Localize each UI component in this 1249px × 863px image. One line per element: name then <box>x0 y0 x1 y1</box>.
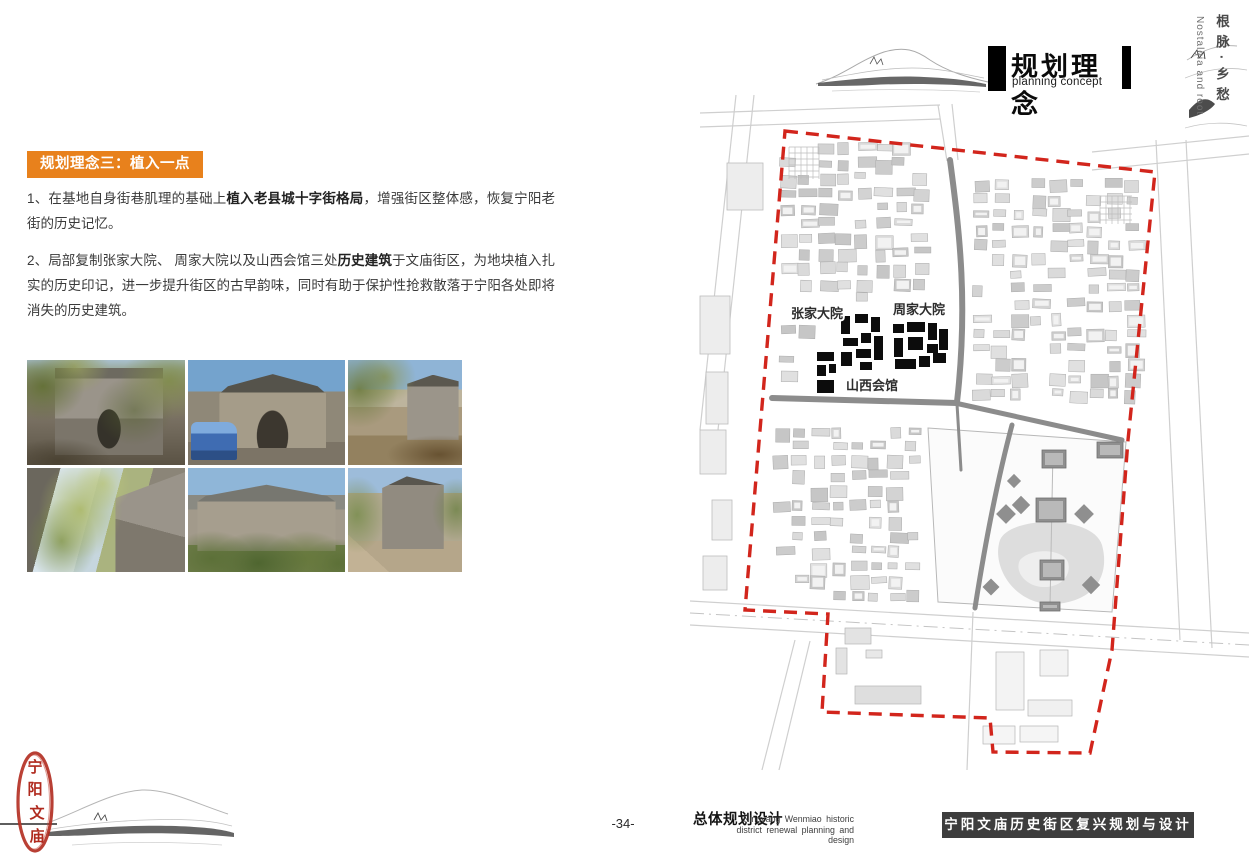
paragraph-1-bold: 植入老县城十字街格局 <box>226 191 363 206</box>
mountain-sketch-header-icon <box>812 34 992 96</box>
seal-char-1: 宁 <box>27 758 42 776</box>
seal-char-3: 文 <box>29 804 45 822</box>
historic-building-photo-5 <box>188 468 345 572</box>
paragraph-2: 2、局部复制张家大院、 周家大院以及山西会馆三处历史建筑于文庙街区，为地块植入扎… <box>27 248 555 323</box>
paragraph-1-text: 1、在基地自身街巷肌理的基础上 <box>27 191 226 206</box>
footer-en-line1: Ningyang Wenmiao historic <box>710 814 854 825</box>
historic-building-photo-3 <box>348 360 462 465</box>
seal-char-4: 庙 <box>29 827 44 845</box>
map-label: 张家大院 <box>791 306 843 321</box>
footer-banner: 宁阳文庙历史街区复兴规划与设计 <box>942 812 1194 838</box>
page-number: -34- <box>598 816 648 831</box>
paragraph-2-bold: 历史建筑 <box>338 253 392 268</box>
site-plan-svg: 张家大院周家大院山西会馆 <box>680 90 1249 780</box>
mountain-sketch-footer-icon <box>42 780 237 852</box>
map-label: 周家大院 <box>893 302 945 317</box>
header-accent-bar <box>988 46 1006 91</box>
header-accent-bar-2 <box>1122 46 1131 89</box>
historic-building-photo-2 <box>188 360 345 465</box>
wenmiao-seal: 宁 阳 文 庙 <box>13 750 57 854</box>
site-plan-map: 张家大院周家大院山西会馆 <box>680 90 1249 780</box>
seal-char-2: 阳 <box>27 780 42 798</box>
map-label: 山西会馆 <box>846 378 898 393</box>
footer-project-title-en: Ningyang Wenmiao historicdistrict renewa… <box>710 814 854 846</box>
section-heading: 规划理念三：植入一点 <box>27 151 203 178</box>
page: 规划理念 planning concept 根脉·乡愁 Nostalgia an… <box>0 0 1249 863</box>
paragraph-1: 1、在基地自身街巷肌理的基础上植入老县城十字街格局，增强街区整体感，恢复宁阳老街… <box>27 186 555 236</box>
page-subtitle: planning concept <box>1012 76 1102 88</box>
footer-en-line2: district renewal planning and design <box>710 825 854 846</box>
paragraph-2-text: 2、局部复制张家大院、 周家大院以及山西会馆三处 <box>27 253 338 268</box>
historic-building-photo-4 <box>27 468 185 572</box>
historic-building-photo-6 <box>348 468 462 572</box>
historic-building-photo-1 <box>27 360 185 465</box>
